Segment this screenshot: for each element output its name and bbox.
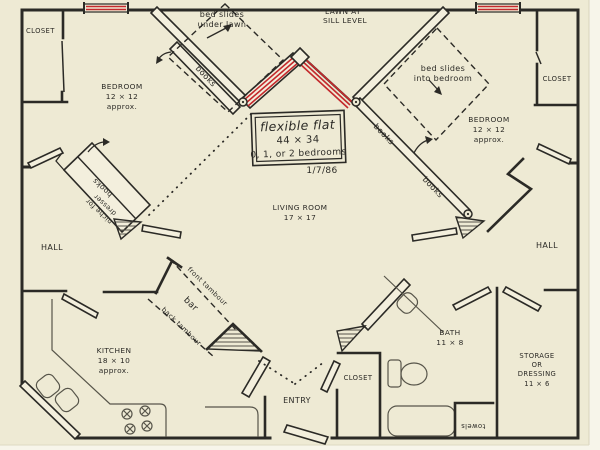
svg-text:BEDROOM: BEDROOM xyxy=(468,115,509,124)
svg-text:DRESSING: DRESSING xyxy=(518,370,556,378)
svg-text:STORAGE: STORAGE xyxy=(519,352,554,360)
label-entry: ENTRY xyxy=(283,396,311,405)
label-bed-slides-right2: into bedroom xyxy=(414,74,472,83)
label-closet-top-left: CLOSET xyxy=(26,27,55,35)
svg-text:approx.: approx. xyxy=(99,366,130,375)
label-bed-slides-left2: under lawn xyxy=(198,20,247,29)
svg-text:12 × 12: 12 × 12 xyxy=(106,92,139,101)
label-hall-right: HALL xyxy=(536,241,558,250)
label-bedroom-right: BEDROOM 12 × 12 approx. xyxy=(468,115,509,144)
svg-text:OR: OR xyxy=(532,361,543,369)
label-towels: towels xyxy=(461,422,485,430)
label-closet-top-right: CLOSET xyxy=(543,75,572,83)
svg-text:approx.: approx. xyxy=(474,135,505,144)
window-frame xyxy=(84,4,128,12)
label-bed-slides-right1: bed slides xyxy=(421,64,465,73)
svg-text:18 × 10: 18 × 10 xyxy=(98,356,131,365)
svg-text:BEDROOM: BEDROOM xyxy=(101,82,142,91)
svg-text:12 × 12: 12 × 12 xyxy=(473,125,506,134)
svg-text:KITCHEN: KITCHEN xyxy=(97,346,132,355)
floor-plan-canvas: books niche for dresser xyxy=(0,0,600,450)
window-left xyxy=(84,2,128,14)
label-lawn-line1: LAWN AT xyxy=(325,7,361,16)
label-living-size: 17 × 17 xyxy=(284,213,317,222)
label-bath: BATH xyxy=(439,328,460,337)
plan-dimensions: 44 × 34 xyxy=(276,134,319,146)
label-bedroom-left: BEDROOM 12 × 12 approx. xyxy=(101,82,142,111)
label-living-room: LIVING ROOM xyxy=(273,203,328,212)
title-block: flexible flat 44 × 34 0, 1, or 2 bedroom… xyxy=(249,110,347,165)
label-entry-closet: CLOSET xyxy=(344,374,373,382)
label-lawn-line2: SILL LEVEL xyxy=(323,16,368,25)
label-bath-size: 11 × 8 xyxy=(436,338,463,347)
svg-text:11 × 6: 11 × 6 xyxy=(524,380,549,388)
svg-text:approx.: approx. xyxy=(107,102,138,111)
window-frame xyxy=(476,4,520,12)
plan-date: 1/7/86 xyxy=(306,166,337,176)
plan-title: flexible flat xyxy=(260,117,336,135)
label-bed-slides-left1: bed slides xyxy=(200,10,244,19)
label-kitchen: KITCHEN 18 × 10 approx. xyxy=(97,346,132,375)
label-hall-left: HALL xyxy=(41,243,63,252)
window-right xyxy=(476,2,520,14)
scanned-floor-plan-page: books niche for dresser xyxy=(0,0,600,450)
